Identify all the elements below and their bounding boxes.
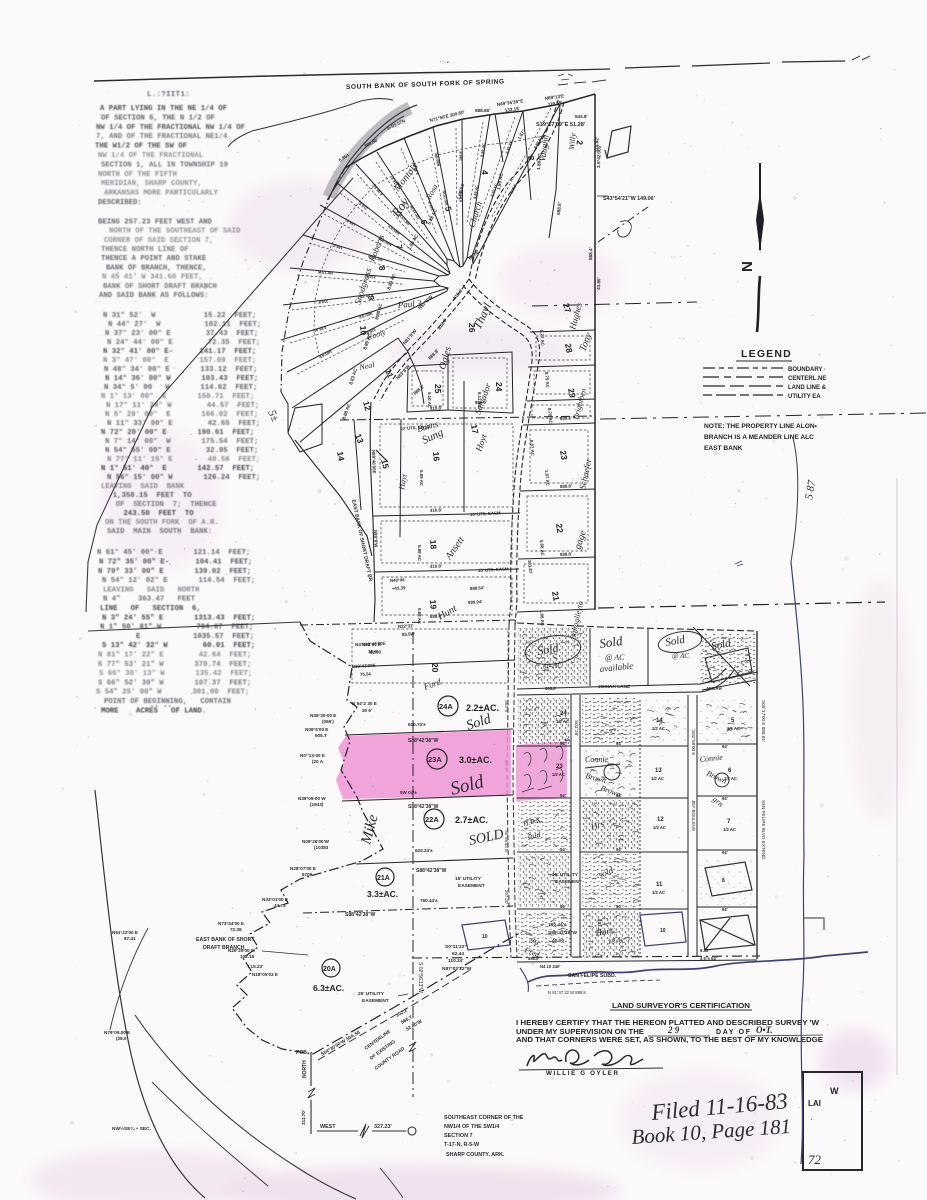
svg-text:588.66': 588.66'	[475, 108, 490, 113]
svg-text:S 66" 30' 13" W 135.42: S 66" 30' 13" W 135.42 FEET;	[99, 670, 252, 678]
svg-text:NW½SE¼ ÷ SEC.: NW½SE¼ ÷ SEC.	[112, 1125, 151, 1132]
svg-text:1/2 AC: 1/2 AC	[653, 825, 666, 830]
svg-text:N 48" 34' 00" E 133.12: N 48" 34' 00" E 133.12 FEET;	[104, 366, 257, 374]
svg-text:14: 14	[335, 451, 347, 462]
svg-text:N73°44'00 E: N73°44'00 E	[218, 921, 244, 926]
svg-text:W: W	[830, 1086, 839, 1096]
svg-text:28: 28	[563, 343, 575, 354]
svg-text:SAN FELIPE BLVD EXTEND: SAN FELIPE BLVD EXTEND	[761, 800, 766, 860]
svg-text:N 31" 52' W 15.22: N 31" 52' W 15.22 FEET;	[103, 312, 256, 320]
svg-text:94': 94'	[616, 904, 622, 909]
svg-text:N40°46: N40°46	[390, 577, 405, 583]
svg-text:N 45 41' W 341.60 FEET,: N 45 41' W 341.60 FEET,	[102, 274, 203, 282]
svg-text:94': 94'	[616, 793, 622, 798]
svg-text:N 3" 24' 55" E 1313.43: N 3" 24' 55" E 1313.43 FEET;	[102, 614, 255, 622]
svg-text:@ AC: @ AC	[672, 652, 689, 660]
svg-text:UNDER MY SUPERVISION ON THE: UNDER MY SUPERVISION ON THE	[516, 1029, 644, 1036]
svg-text:44.75: 44.75	[274, 903, 286, 908]
svg-text:(10383: (10383	[314, 845, 329, 850]
svg-text:+43.39: +43.39	[392, 585, 406, 591]
svg-text:N 81°47 22 W 888.8: N 81°47 22 W 888.8	[548, 990, 586, 995]
svg-text:N 34" 5' 00 W 114.62: N 34" 5' 00 W 114.62 FEET;	[104, 384, 257, 392]
svg-text:S0°11'22"': S0°11'22"'	[445, 944, 468, 950]
svg-text:1/2 AC: 1/2 AC	[652, 890, 665, 895]
svg-text:NORTH: NORTH	[302, 1060, 308, 1078]
svg-text:N09°5'00 E: N09°5'00 E	[305, 727, 328, 732]
svg-text:OF SECTION 6, THE N 1/2 OF: OF SECTION 6, THE N 1/2 OF	[101, 114, 215, 122]
svg-text:S03°0': S03°0'	[504, 700, 509, 713]
svg-text:5.88 AC: 5.88 AC	[417, 608, 422, 625]
svg-text:· •: · •	[444, 60, 449, 66]
svg-text:888.4': 888.4'	[588, 247, 593, 260]
svg-text:(20 A: (20 A	[312, 759, 324, 764]
svg-text:A PART LYING IN THE NE 1/4 O: A PART LYING IN THE NE 1/4 OF	[100, 105, 227, 113]
svg-text:N89°8'W: N89°8'W	[373, 530, 379, 548]
svg-text:JEF BOULEVE: JEF BOULEVE	[691, 800, 696, 831]
svg-text:SECTION 1, ALL IN TOWNSHIP 19: SECTION 1, ALL IN TOWNSHIP 19	[101, 161, 228, 169]
svg-text:N 72" 35' 00" E- 104.41: N 72" 35' 00" E- 104.41 FEET;	[99, 559, 252, 567]
svg-text:11: 11	[656, 882, 663, 888]
svg-text:NW 1/4 OF THE FRACTIONAL NW 1/: NW 1/4 OF THE FRACTIONAL NW 1/4 OF	[96, 124, 245, 132]
svg-text:110.24': 110.24'	[448, 958, 464, 964]
svg-text:888.8': 888.8'	[430, 613, 442, 619]
svg-text:WEST: WEST	[320, 1124, 336, 1130]
svg-text:22: 22	[554, 523, 565, 534]
svg-text:(1943): (1943)	[310, 802, 324, 807]
svg-text:1/2 AC: 1/2 AC	[723, 827, 736, 832]
svg-text:N 37" 23' 00" E 37.43: N 37" 23' 00" E 37.43 FEET;	[105, 330, 258, 338]
svg-text:AND SAID BANK AS FOLLOWS:: AND SAID BANK AS FOLLOWS:	[99, 292, 208, 300]
svg-text:94': 94'	[722, 850, 728, 855]
svg-text:94': 94'	[616, 741, 622, 746]
svg-text:24A: 24A	[439, 702, 453, 711]
svg-text:N 54°2 30 E: N 54°2 30 E	[352, 701, 377, 706]
svg-text:8: 8	[722, 878, 725, 884]
svg-text:6.3±AC.: 6.3±AC.	[313, 983, 344, 993]
svg-text:LEAVING SAID NORTH: LEAVING SAID NORTH	[103, 586, 199, 594]
svg-text:L.:?IIT1:: L.:?IIT1:	[147, 91, 190, 99]
svg-text:94': 94'	[560, 847, 566, 852]
svg-text:888.8': 888.8'	[528, 956, 539, 961]
svg-text:760.44'±: 760.44'±	[420, 898, 438, 903]
svg-text:N 14" 36' 00" W 103.43: N 14" 36' 00" W 103.43 FEET;	[105, 375, 258, 383]
svg-text:N 44" 27' W 102.11: N 44" 27' W 102.11 FEET;	[108, 321, 261, 329]
svg-text:605.T: 605.T	[315, 733, 327, 738]
svg-text:SAID MAIN SOUTH BANK:: SAID MAIN SOUTH BANK:	[107, 528, 238, 536]
svg-text:N22°32': N22°32'	[398, 623, 414, 629]
svg-text:S 66" 52' 30" W 107.37: S 66" 52' 30" W 107.37 FEET;	[98, 679, 251, 687]
svg-text:10: 10	[482, 934, 488, 940]
svg-text:6709: 6709	[302, 872, 313, 877]
svg-text:22A: 22A	[425, 815, 439, 824]
svg-text:20: 20	[430, 663, 440, 673]
svg-text:N 17" 11' 24" W 44.57: N 17" 11' 24" W 44.57 FEET;	[106, 402, 259, 410]
svg-text:23: 23	[558, 450, 570, 461]
svg-text:MERIDIAN, SHARP COUNTY,: MERIDIAN, SHARP COUNTY,	[101, 180, 202, 188]
svg-text:888.8': 888.8'	[560, 551, 572, 557]
svg-text:·: ·	[810, 1115, 813, 1124]
svg-text:207.20': 207.20'	[504, 890, 509, 904]
svg-text:N 72" 20' 00" E 190.61: N 72" 20' 00" E 190.61 FEET;	[101, 429, 254, 437]
svg-text:S 77" 53' 21" W 370.74: S 77" 53' 21" W 370.74 FEET;	[98, 661, 251, 669]
svg-text:LAND LINE &: LAND LINE &	[788, 385, 827, 391]
svg-text:N 61" 45' 00" E 121.14: N 61" 45' 00" E 121.14 FEET;	[97, 549, 250, 557]
svg-text:610.73'±: 610.73'±	[408, 722, 426, 727]
svg-text:DESCRIBED:: DESCRIBED:	[98, 199, 142, 207]
svg-text:N 56" 15' 00" W 126.24: N 56" 15' 00" W 126.24 FEET;	[107, 474, 260, 482]
svg-text:10: 10	[660, 928, 666, 934]
svg-text:POB: POB	[296, 1050, 307, 1056]
svg-text:S39°17'09"E 51.28': S39°17'09"E 51.28'	[536, 122, 586, 128]
svg-text:3.3±AC.: 3.3±AC.	[367, 889, 398, 899]
svg-text:BRANCH IS A MEANDER LINE ALC: BRANCH IS A MEANDER LINE ALC	[704, 434, 814, 441]
svg-text:T-17-N, R-5-W: T-17-N, R-5-W	[444, 1142, 480, 1148]
svg-text:2 9: 2 9	[667, 1025, 680, 1035]
svg-text:12: 12	[657, 817, 664, 823]
svg-text:15' UTILITY: 15' UTILITY	[455, 876, 482, 882]
svg-text:BANK OF BRANCH, THENCE,: BANK OF BRANCH, THENCE,	[106, 264, 207, 272]
svg-text:N 79" 33' 00" E 139.02: N 79" 33' 00" E 139.02 FEET;	[98, 568, 251, 576]
svg-text:BANK OF SHORT DRAFT BRANCH: BANK OF SHORT DRAFT BRANCH	[103, 283, 217, 291]
svg-text:N 77" 11' 15" E 40.56: N 77" 11' 15" E 40.56 FEET;	[107, 456, 260, 464]
svg-text:N51°23'00 E: N51°23'00 E	[112, 930, 138, 935]
svg-text:N87°03'22"W: N87°03'22"W	[442, 966, 472, 972]
svg-text:311.70': 311.70'	[301, 1110, 306, 1125]
svg-text:NOTE: THE PROPERTY LINE ALON•: NOTE: THE PROPERTY LINE ALON•	[704, 423, 818, 430]
svg-text:87.41: 87.41	[124, 936, 136, 941]
svg-text:N 54" 12' 02" E 114.54: N 54" 12' 02" E 114.54 FEET;	[102, 577, 255, 585]
svg-text:(01.27': (01.27'	[596, 920, 602, 935]
svg-text:115.82': 115.82'	[594, 137, 600, 152]
svg-text:S88°42'38"W: S88°42'38"W	[416, 868, 447, 874]
svg-text:S02°58'00 E: S02°58'00 E	[691, 730, 696, 755]
svg-text:N 4" 363.47 FEET: N 4" 363.47 FEET	[103, 596, 196, 604]
svg-text:760.44'±: 760.44'±	[548, 922, 567, 928]
svg-text:NW1/4 OF THE SW1/4: NW1/4 OF THE SW1/4	[444, 1124, 499, 1130]
svg-text:THE W1/2 OF THE SW OF: THE W1/2 OF THE SW OF	[95, 143, 187, 151]
svg-text:N33°01'00 E: N33°01'00 E	[262, 897, 288, 902]
svg-text:E 1035.57 FEET;: E 1035.57 FEET;	[101, 633, 254, 641]
svg-text:N: N	[739, 261, 756, 272]
svg-text:SHARP COUNTY, ARK.: SHARP COUNTY, ARK.	[446, 1152, 505, 1158]
svg-text:5.10 AC: 5.10 AC	[427, 392, 432, 409]
svg-text:327.23': 327.23'	[374, 1124, 392, 1130]
svg-text:5W 04'±: 5W 04'±	[400, 790, 417, 795]
svg-text:THENCE A POINT AND STAKE: THENCE A POINT AND STAKE	[101, 255, 207, 263]
svg-text:188.8': 188.8'	[459, 150, 463, 161]
svg-text:4 K's 04': 4 K's 04'	[700, 956, 717, 961]
svg-text:N 54" 55' 00" E 32.95: N 54" 55' 00" E 32.95 FEET;	[105, 447, 258, 455]
svg-text:543.8': 543.8'	[575, 114, 588, 119]
svg-text:N39°05-00 W: N39°05-00 W	[298, 796, 326, 801]
svg-text:888.64': 888.64'	[470, 585, 485, 591]
svg-text:94': 94'	[722, 907, 728, 912]
svg-text:102.18: 102.18	[240, 954, 254, 959]
svg-text:S 54" 25' 00" W 301.00: S 54" 25' 00" W 301.00 FEET;	[96, 689, 249, 697]
svg-text:NORTH OF THE SOUTHEAST OF SAID: NORTH OF THE SOUTHEAST OF SAID	[109, 228, 241, 236]
svg-text:N 24" 44' 00" E 72.35: N 24" 44' 00" E 72.35 FEET;	[107, 339, 260, 347]
svg-text:25' UTILITY: 25' UTILITY	[358, 991, 385, 997]
svg-text:S 02°56'13"W: S 02°56'13"W	[417, 962, 423, 993]
svg-text:23A: 23A	[428, 755, 442, 764]
svg-text:1/2 AC: 1/2 AC	[652, 726, 665, 731]
svg-text:NORTH OF THE FIFTH: NORTH OF THE FIFTH	[98, 171, 177, 179]
svg-text:EASEMENT: EASEMENT	[362, 998, 389, 1004]
svg-text:N3°492 30 E: N3°492 30 E	[355, 642, 381, 647]
svg-text:85.5W: 85.5W	[402, 631, 416, 637]
svg-text:5.89 AC: 5.89 AC	[419, 470, 424, 487]
svg-text:N28°07'00 E: N28°07'00 E	[290, 866, 316, 871]
svg-text:LAND SURVEYOR'S CERTIFICATIO: LAND SURVEYOR'S CERTIFICATION	[612, 1003, 750, 1010]
svg-text:94': 94'	[616, 847, 622, 852]
svg-text:ON THE SOUTH FORK OF A.R.: ON THE SOUTH FORK OF A.R.	[105, 519, 236, 527]
svg-text:43.85': 43.85'	[596, 277, 601, 290]
svg-text:94': 94'	[722, 796, 728, 801]
svg-text:N18°05'03 E: N18°05'03 E	[252, 972, 278, 977]
svg-text:40.00: 40.00	[552, 938, 564, 944]
svg-text:EAST BANK OF SHORT: EAST BANK OF SHORT	[196, 937, 255, 943]
svg-text:EASEMENT: EASEMENT	[458, 883, 485, 889]
svg-text:623.24'±: 623.24'±	[415, 848, 433, 853]
svg-text:2.7±AC.: 2.7±AC.	[455, 815, 488, 825]
svg-text:THENCE NORTH LINE OF: THENCE NORTH LINE OF	[101, 246, 189, 254]
svg-text:CENTERL.NE: CENTERL.NE	[788, 376, 826, 382]
svg-text:Willy: Willy	[567, 132, 578, 150]
svg-text:JOSIAH: JOSIAH	[706, 686, 722, 691]
svg-text:72: 72	[808, 1152, 822, 1167]
svg-text:3.0±AC.: 3.0±AC.	[459, 755, 492, 765]
svg-text:1/2 AC: 1/2 AC	[556, 719, 569, 724]
svg-text:N 7" 14' 00" W 175.54: N 7" 14' 00" W 175.54 FEET;	[105, 438, 258, 446]
svg-text:21A: 21A	[377, 875, 390, 882]
svg-text:BOUNDARY ·: BOUNDARY ·	[788, 367, 826, 373]
svg-text:N0°'13-00 E: N0°'13-00 E	[300, 753, 325, 758]
svg-text:62.44: 62.44	[452, 951, 464, 957]
svg-text:LAI: LAI	[808, 1099, 821, 1108]
svg-text:20A: 20A	[323, 966, 336, 973]
svg-text:75.54: 75.54	[360, 671, 372, 677]
svg-text:7, AND OF THE FRACTIONAL NE1: 7, AND OF THE FRACTIONAL NE1/4	[96, 133, 228, 141]
svg-text:SAN FELIPE SUBD.: SAN FELIPE SUBD.	[568, 973, 617, 979]
svg-text:25: 25	[433, 384, 443, 394]
svg-text:NW 1/4 OF THE FRACTIONAL: NW 1/4 OF THE FRACTIONAL	[98, 152, 203, 160]
svg-text:@ AC: @ AC	[543, 661, 563, 670]
svg-text:13: 13	[655, 768, 662, 774]
svg-text:N 11" 33' 00" E 42.65: N 11" 33' 00" E 42.65 FEET;	[107, 420, 260, 428]
svg-text:94': 94'	[560, 904, 566, 909]
svg-text:N 32" 41' 00" E- 141.17: N 32" 41' 00" E- 141.17 FEET;	[103, 348, 256, 356]
svg-text:Connie: Connie	[585, 755, 609, 764]
svg-text:24: 24	[560, 711, 567, 717]
svg-text:/ 15.23': / 15.23'	[248, 964, 263, 969]
svg-text:N 1" 13' 00" E 150.71: N 1" 13' 00" E 150.71 FEET;	[101, 393, 254, 401]
svg-text:UTILITY EA: UTILITY EA	[788, 394, 821, 400]
svg-text:SECTION 7: SECTION 7	[444, 1133, 472, 1139]
svg-text:BEING 257.23 FEET WEST AND: BEING 257.23 FEET WEST AND	[98, 218, 212, 226]
svg-text:72.38: 72.38	[230, 927, 242, 932]
svg-text:EAST BANK: EAST BANK	[704, 445, 743, 452]
svg-text:16: 16	[431, 451, 442, 462]
svg-text:WILLIE G OYLER: WILLIE G OYLER	[546, 1070, 619, 1077]
svg-text:(066'): (066')	[322, 719, 334, 724]
svg-text:N09°26'00'W: N09°26'00'W	[302, 839, 330, 844]
svg-text:410.8': 410.8'	[430, 563, 442, 569]
svg-text:1/2 AC: 1/2 AC	[651, 776, 664, 781]
svg-text:1,350.15 FEET TO: 1,350.15 FEET TO	[104, 492, 235, 500]
svg-text:94': 94'	[560, 741, 566, 746]
svg-text:308.8': 308.8'	[545, 686, 556, 691]
svg-text:(28.0: (28.0	[116, 1036, 127, 1041]
svg-text:OF SECTION 7; THENCE: OF SECTION 7; THENCE	[107, 501, 238, 509]
svg-text:AND THAT CORNERS WERE SET, AS: AND THAT CORNERS WERE SET, AS SHOWN, TO …	[516, 1037, 823, 1044]
svg-text:S88°42'38"W: S88°42'38"W	[548, 930, 578, 936]
svg-text:4: 4	[480, 170, 490, 175]
svg-text:S88°42'38"W: S88°42'38"W	[345, 912, 376, 918]
svg-text:S03°17'00 E 888.84': S03°17'00 E 888.84'	[761, 700, 766, 742]
svg-text:N88°46'00E: N88°46'00E	[371, 450, 377, 474]
svg-text:DRAFT BRANCH: DRAFT BRANCH	[203, 945, 245, 951]
svg-text:999.94': 999.94'	[468, 599, 483, 605]
svg-text:410.8': 410.8'	[430, 507, 442, 513]
svg-text:5.88 AC: 5.88 AC	[417, 545, 422, 562]
svg-text:30 6': 30 6'	[368, 649, 378, 654]
svg-text:19: 19	[428, 599, 439, 610]
svg-text:21: 21	[550, 591, 562, 602]
svg-text:94': 94'	[560, 793, 566, 798]
svg-text:2.2±AC.: 2.2±AC.	[466, 703, 499, 713]
svg-text:ARKANSAS MORE PARTICULARLY: ARKANSAS MORE PARTICULARLY	[104, 190, 218, 198]
svg-text:18: 18	[428, 539, 439, 550]
svg-text:N 5" 29' 00" E 166.02: N 5" 29' 00" E 166.02 FEET;	[105, 411, 258, 419]
svg-text:-- -- .: -- -- .	[150, 703, 181, 711]
svg-text:N45°30-00 E: N45°30-00 E	[310, 713, 336, 718]
svg-text:O•T.: O•T.	[756, 1025, 773, 1035]
svg-text:888.8': 888.8'	[560, 483, 572, 489]
svg-text:LEAVING SAID BANK: LEAVING SAID BANK	[101, 483, 232, 491]
svg-text:30 6': 30 6'	[362, 708, 372, 713]
svg-text:JOSIAH LANE: JOSIAH LANE	[598, 684, 631, 690]
svg-text:24: 24	[494, 382, 504, 392]
svg-text:N 3" 47' 00" E 157.09: N 3" 47' 00" E 157.09 FEET;	[103, 357, 256, 365]
svg-text:S03°28': S03°28'	[574, 720, 579, 736]
svg-text:N4 10 240': N4 10 240'	[540, 964, 560, 969]
svg-text:CORNER OF SAID SECTION 7,: CORNER OF SAID SECTION 7,	[104, 237, 213, 245]
svg-text:9.85°: 9.85°	[700, 948, 710, 953]
svg-text:LINE OF SECTION 6,: LINE OF SECTION 6,	[100, 605, 201, 613]
svg-text:LEGEND: LEGEND	[741, 348, 792, 360]
svg-text:N 81" 17' 22" E 42.64: N 81" 17' 22" E 42.64 FEET;	[98, 652, 251, 660]
svg-text:243.50 FEET TO: 243.50 FEET TO	[106, 510, 237, 518]
svg-text:S 13" 42' 32" W 60.01: S 13" 42' 32" W 60.01 FEET;	[102, 642, 255, 650]
svg-text:806.8': 806.8'	[475, 399, 487, 405]
